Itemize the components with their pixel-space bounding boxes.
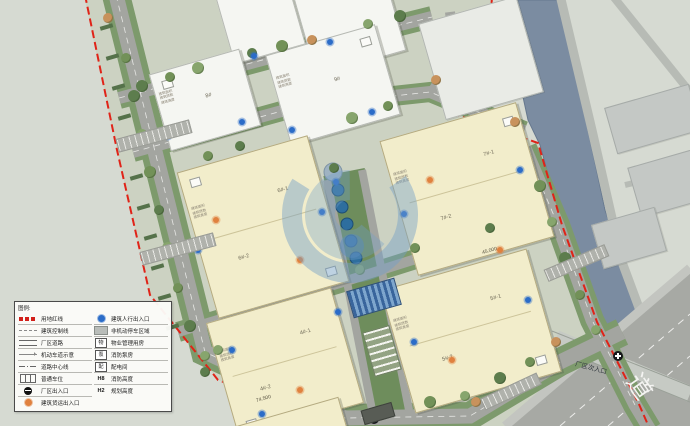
legend-item-site-gate: 厂区出入口 xyxy=(18,385,92,397)
legend-item-control-line: 建筑控制线 xyxy=(18,325,92,337)
legend-item-pedestrian-entrance: 建筑人行出入口 xyxy=(94,313,168,325)
legend: 图例: 用地红线 建筑控制线 厂区道路 机动车道示意 道路中心线 xyxy=(14,301,172,412)
legend-right-column: 建筑人行出入口 非机动停车区域 物 物业管理用房 泵 消防泵房 配 配电间 H8… xyxy=(94,313,168,408)
parking-space-icon xyxy=(18,374,38,383)
freight-entrance-icon xyxy=(18,399,38,406)
legend-item-fire-pump-room: 泵 消防泵房 xyxy=(94,349,168,361)
property-room-icon: 物 xyxy=(94,338,108,348)
power-room-icon: 配 xyxy=(94,362,108,372)
legend-item-vehicle-lane: 机动车道示意 xyxy=(18,349,92,361)
control-line-icon xyxy=(18,330,38,331)
legend-item-factory-road: 厂区道路 xyxy=(18,337,92,349)
legend-item-parking: 普通车位 xyxy=(18,373,92,385)
legend-item-centerline: 道路中心线 xyxy=(18,361,92,373)
entry-plaza xyxy=(324,163,342,181)
legend-item-bike-parking: 非机动停车区域 xyxy=(94,325,168,337)
master-plan: 道 厂区次入口 8#建筑面积 建筑层数 建筑高度9#建筑面积 建筑层数 建筑高度… xyxy=(0,0,690,426)
centerline-icon xyxy=(18,366,38,367)
legend-left-column: 用地红线 建筑控制线 厂区道路 机动车道示意 道路中心线 普通车位 xyxy=(18,313,92,408)
legend-item-power-room: 配 配电间 xyxy=(94,361,168,373)
legend-item-freight-entrance: 建筑货运出入口 xyxy=(18,397,92,408)
pedestrian-entrance-icon xyxy=(94,315,108,322)
site-gate-icon xyxy=(18,387,38,395)
fire-pump-room-icon: 泵 xyxy=(94,350,108,360)
legend-item-fire-height: H8 消防高度 xyxy=(94,373,168,385)
legend-item-planning-height: H2 规划高度 xyxy=(94,385,168,396)
red-line-icon xyxy=(18,317,38,321)
bike-parking-icon xyxy=(94,326,108,335)
legend-item-red-line: 用地红线 xyxy=(18,313,92,325)
vehicle-lane-icon xyxy=(18,354,38,355)
fire-height-icon: H8 xyxy=(94,376,108,382)
planning-height-icon: H2 xyxy=(94,388,108,394)
legend-item-property-room: 物 物业管理用房 xyxy=(94,337,168,349)
legend-title: 图例: xyxy=(18,304,168,312)
factory-road-icon xyxy=(18,340,38,346)
